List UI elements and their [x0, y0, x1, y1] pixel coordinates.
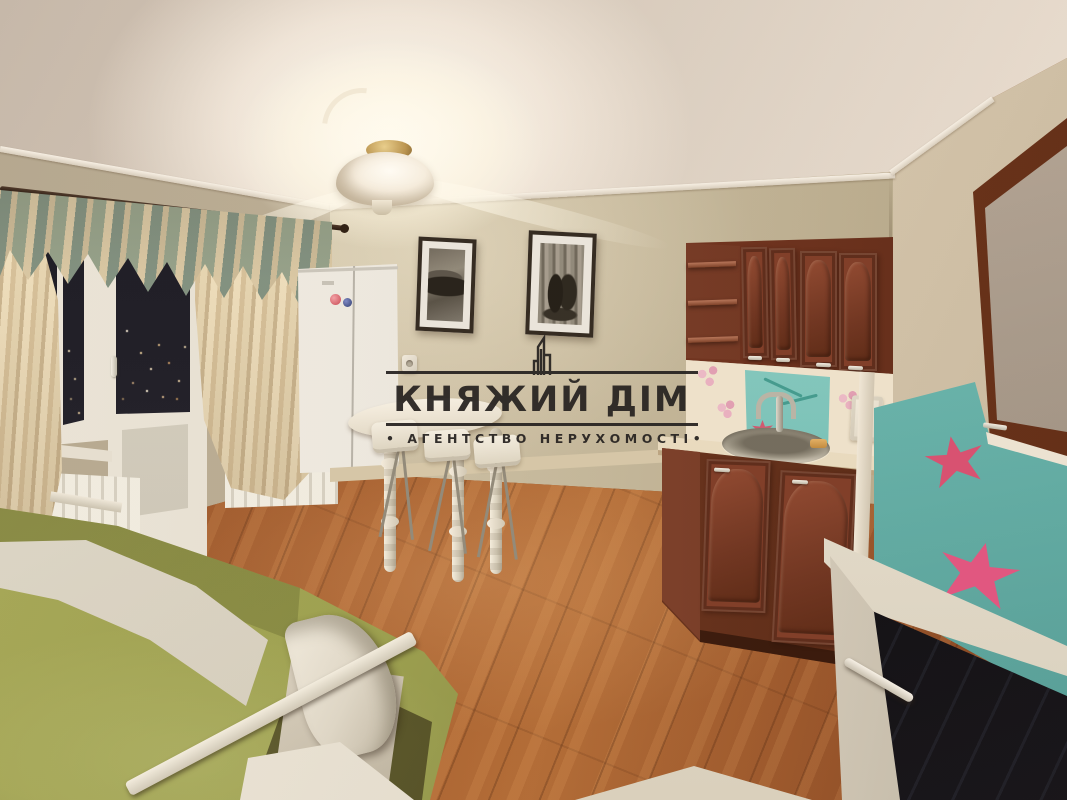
agency-watermark: КНЯЖИЙ ДІМ • АГЕНТСТВО НЕРУХОМОСТІ•	[386, 334, 698, 446]
watermark-logo-row	[386, 334, 698, 376]
cabinet-handle	[848, 366, 863, 371]
faucet	[776, 396, 783, 432]
curtain-rod-finial	[340, 224, 349, 233]
upper-cabinet-door	[741, 247, 769, 358]
artwork-silhouettes	[538, 243, 585, 325]
cabinet-handle	[792, 480, 808, 485]
door-panel	[775, 257, 791, 350]
night-city-lights	[0, 0, 2, 2]
fridge-magnet-pink	[330, 294, 341, 305]
sponge	[810, 439, 827, 448]
upper-cabinet-door	[800, 251, 837, 367]
cabinet-handle	[816, 363, 831, 368]
door-panel	[806, 260, 831, 357]
door-panel	[747, 256, 763, 348]
bullet-left: •	[386, 431, 399, 446]
watermark-rule-bottom	[386, 423, 698, 426]
watermark-title: КНЯЖИЙ ДІМ	[386, 383, 698, 417]
turned-detail	[487, 518, 505, 529]
subtitle-text: АГЕНТСТВО НЕРУХОМОСТІ	[407, 431, 692, 446]
upper-cabinet-door	[839, 253, 877, 371]
door-panel	[845, 262, 871, 361]
balcony-door-handle	[111, 356, 117, 377]
framed-print-left	[415, 237, 476, 334]
door-panel	[708, 468, 765, 603]
city-skyline-icon	[527, 334, 557, 376]
base-cabinet-door	[701, 459, 770, 613]
cabinet-handle	[748, 356, 762, 360]
fridge-brand-mark	[322, 281, 334, 285]
fridge-magnet-blue	[343, 298, 352, 307]
lamp-finial	[372, 200, 392, 215]
turned-detail	[449, 466, 467, 477]
ceiling-lamp	[336, 152, 434, 206]
upper-cabinet-door	[769, 248, 797, 360]
cabinet-handle	[776, 358, 790, 362]
artwork-piano-scene	[427, 248, 465, 322]
flower-motif	[714, 398, 740, 422]
watermark-subtitle: • АГЕНТСТВО НЕРУХОМОСТІ•	[386, 431, 698, 446]
framed-print-right	[525, 230, 597, 337]
apartment-photo: КНЯЖИЙ ДІМ • АГЕНТСТВО НЕРУХОМОСТІ•	[0, 0, 1067, 800]
bullet-right: •	[693, 431, 706, 446]
cabinet-handle	[714, 468, 730, 473]
